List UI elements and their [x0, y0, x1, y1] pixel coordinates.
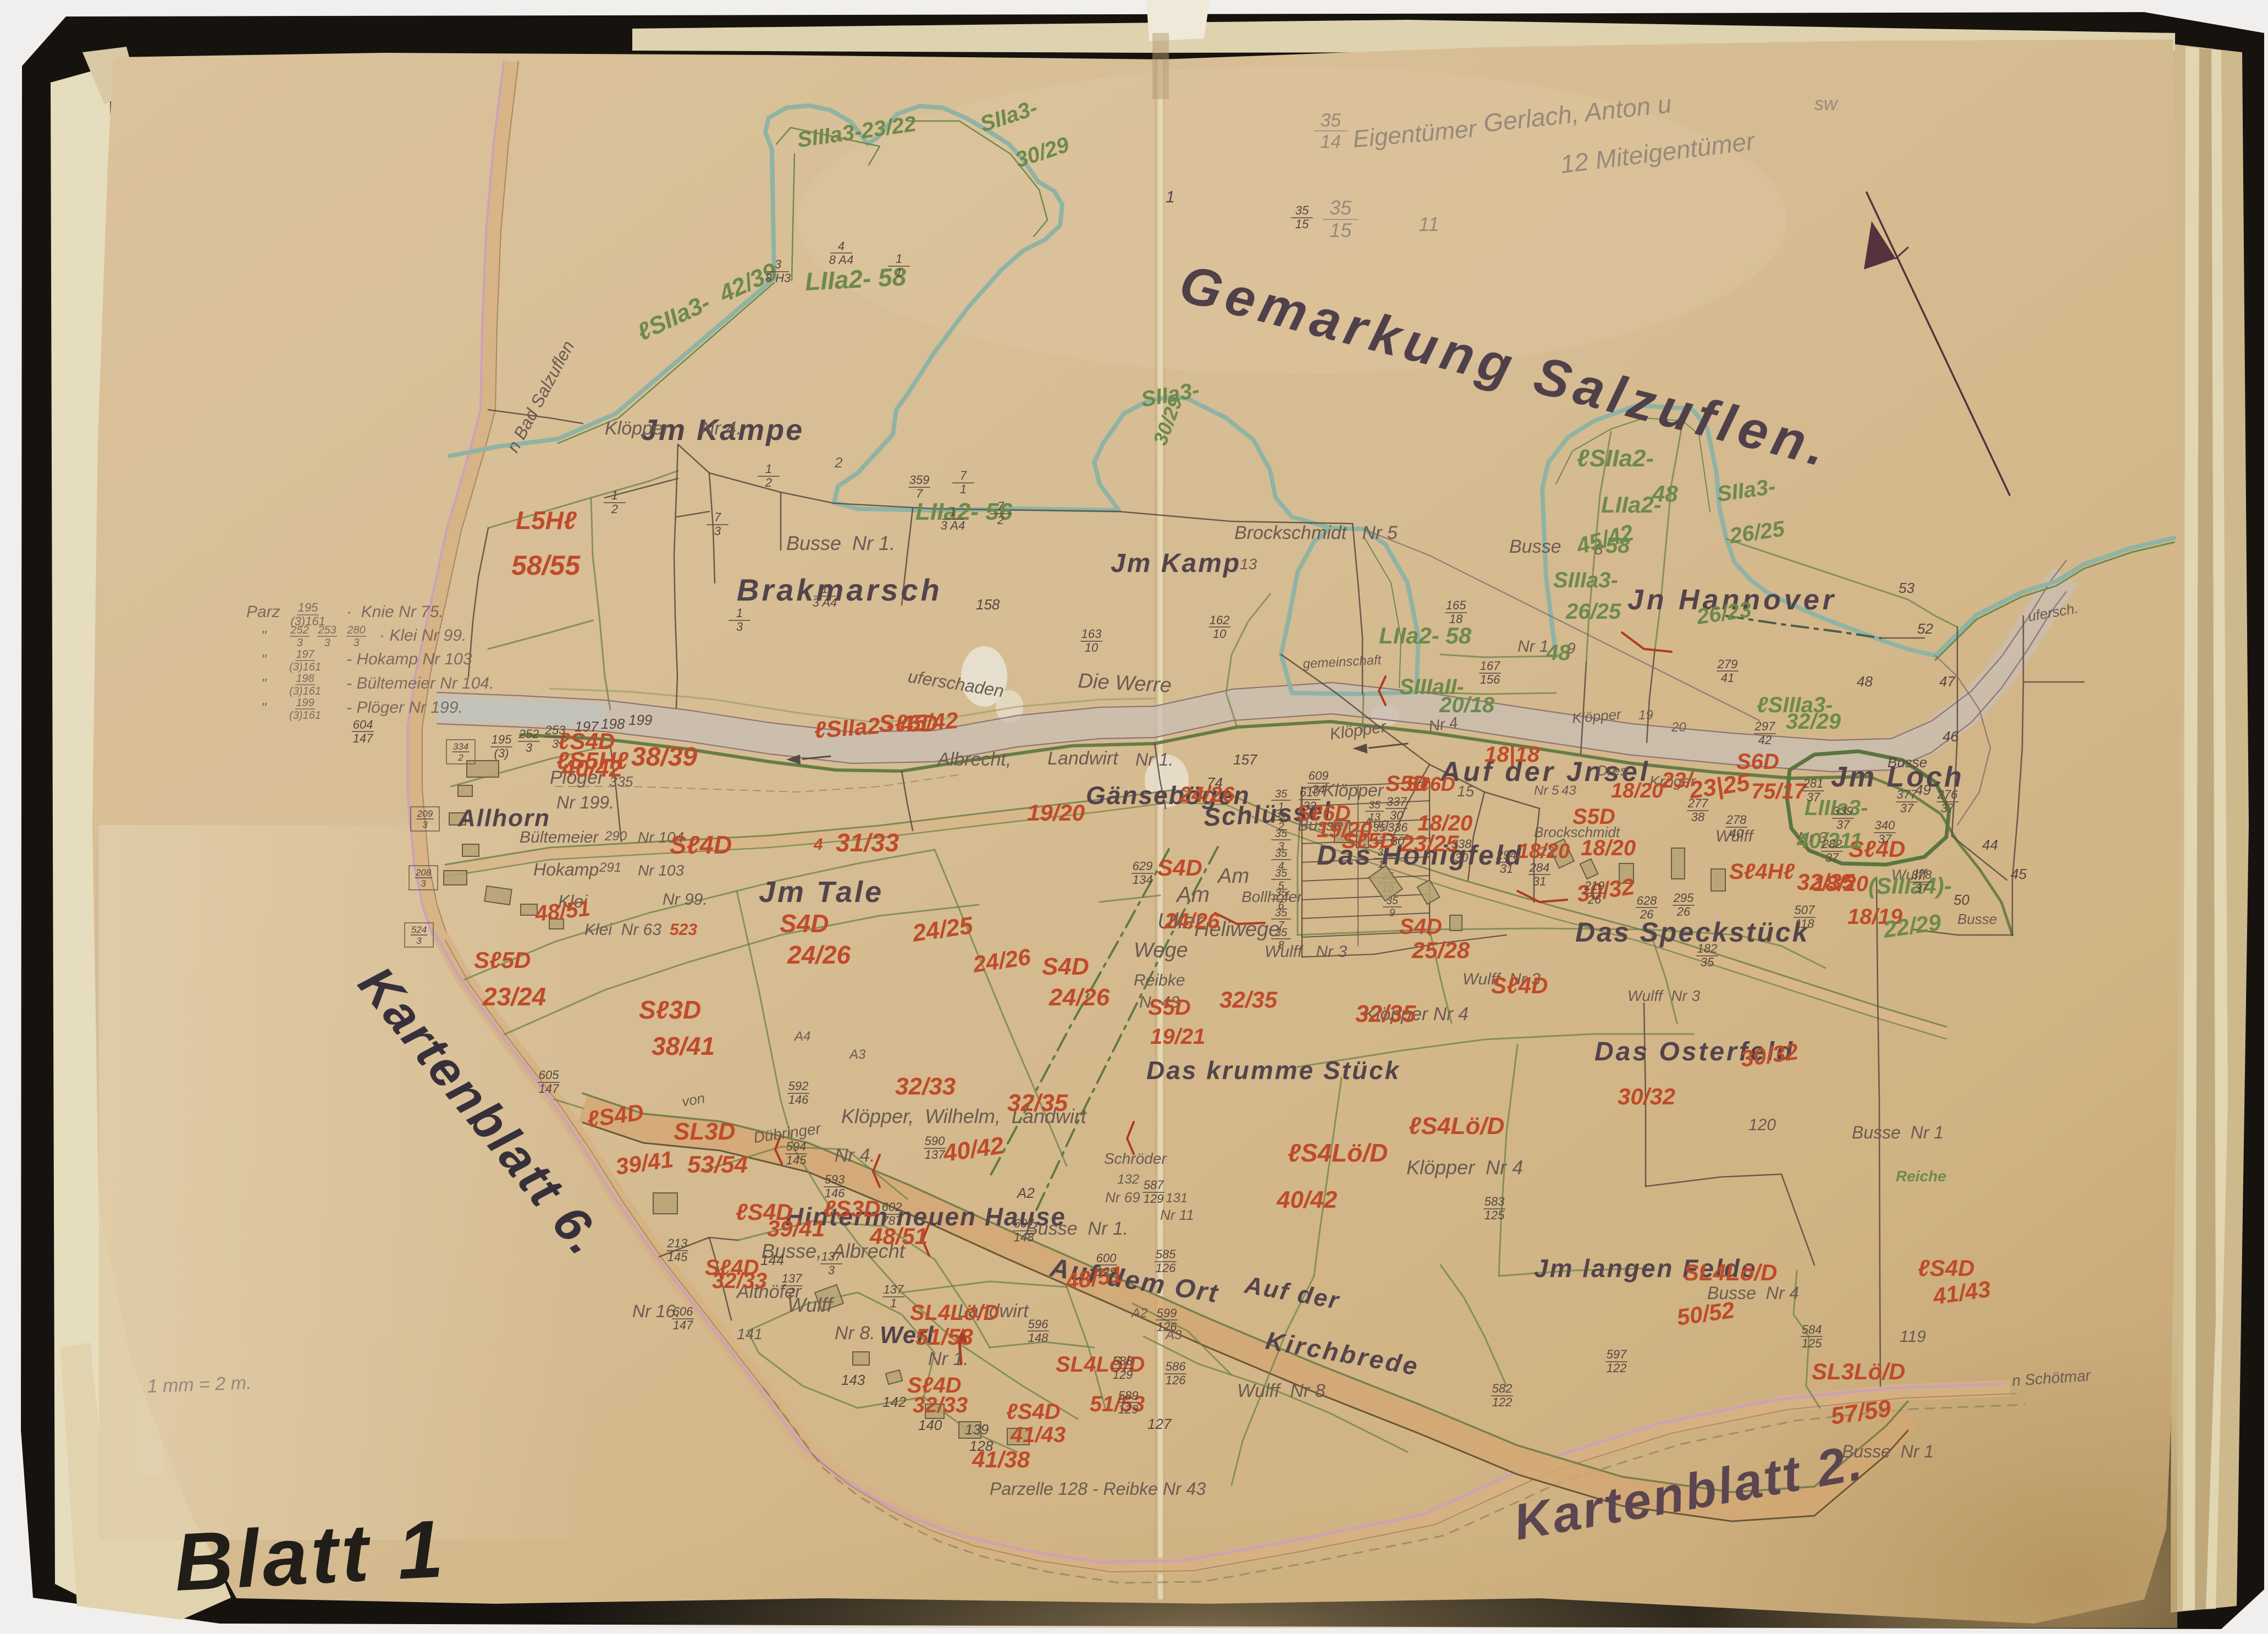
svg-text:507: 507 — [1795, 903, 1815, 917]
svg-text:(3)161: (3)161 — [289, 661, 321, 673]
svg-text:44: 44 — [1982, 837, 1998, 853]
svg-text:11: 11 — [1419, 213, 1439, 235]
svg-text:32/33: 32/33 — [712, 1269, 767, 1293]
svg-text:199: 199 — [296, 697, 314, 709]
svg-text:2: 2 — [997, 513, 1004, 527]
svg-text:Wulff Nr 3: Wulff Nr 3 — [1627, 987, 1701, 1004]
svg-text:31: 31 — [1500, 862, 1513, 876]
svg-text:23/: 23/ — [1661, 768, 1694, 793]
svg-text:31: 31 — [1533, 874, 1546, 888]
svg-text:252: 252 — [290, 624, 308, 636]
svg-text:1: 1 — [1166, 188, 1175, 206]
svg-text:146: 146 — [825, 1186, 845, 1200]
svg-text:278: 278 — [1726, 813, 1747, 827]
svg-text:4: 4 — [813, 835, 823, 854]
svg-text:129: 129 — [1096, 1265, 1117, 1279]
svg-text:Busse Nr 1.: Busse Nr 1. — [1025, 1218, 1128, 1239]
svg-text:3: 3 — [296, 637, 302, 649]
svg-text:1: 1 — [765, 462, 772, 476]
svg-text:3: 3 — [422, 819, 428, 830]
svg-text:19/21: 19/21 — [1150, 1025, 1205, 1049]
svg-text:Klei Nr 63: Klei Nr 63 — [584, 921, 661, 939]
svg-text:37: 37 — [1836, 818, 1850, 832]
svg-text:2: 2 — [611, 502, 618, 516]
svg-text:Nr 4.: Nr 4. — [835, 1145, 875, 1166]
svg-text:19/20: 19/20 — [1027, 800, 1085, 826]
svg-text:20/18: 20/18 — [1439, 693, 1495, 717]
svg-text:141: 141 — [737, 1325, 763, 1343]
svg-text:359: 359 — [909, 473, 930, 487]
svg-text:163: 163 — [1081, 627, 1102, 641]
svg-text:35: 35 — [1368, 800, 1381, 811]
svg-text:131: 131 — [1166, 1191, 1188, 1206]
svg-text:32/35: 32/35 — [1355, 1000, 1416, 1027]
svg-text:15: 15 — [1457, 783, 1475, 800]
svg-text:294: 294 — [1496, 848, 1517, 862]
svg-text:50: 50 — [1954, 892, 1969, 908]
svg-text:787: 787 — [882, 1214, 902, 1228]
svg-text:199: 199 — [628, 712, 652, 728]
svg-text:Busse Nr 1.: Busse Nr 1. — [786, 532, 895, 554]
svg-text:41/43: 41/43 — [1010, 1423, 1066, 1447]
svg-text:18/20: 18/20 — [1417, 811, 1472, 835]
svg-text:35: 35 — [1275, 907, 1288, 919]
svg-text:- Plöger Nr 199.: - Plöger Nr 199. — [346, 698, 463, 717]
svg-text:Nr 99.: Nr 99. — [663, 890, 708, 909]
svg-text:52: 52 — [1917, 620, 1933, 637]
svg-text:Schröder: Schröder — [1104, 1150, 1167, 1167]
svg-text:7: 7 — [714, 510, 721, 524]
svg-text:590: 590 — [925, 1134, 945, 1148]
svg-text:7: 7 — [997, 499, 1005, 513]
svg-text:Wulff Nr 8: Wulff Nr 8 — [1237, 1380, 1326, 1401]
svg-text:ℓSIIa2-: ℓSIIa2- — [1577, 445, 1654, 472]
svg-text:32/35: 32/35 — [1007, 1090, 1068, 1116]
svg-text:586: 586 — [1166, 1360, 1186, 1373]
svg-text:LIIa2-: LIIa2- — [1601, 492, 1662, 518]
svg-text:37: 37 — [1941, 801, 1955, 815]
svg-text:35: 35 — [1329, 196, 1352, 219]
svg-text:340: 340 — [1875, 818, 1895, 832]
svg-text:139: 139 — [965, 1421, 989, 1438]
svg-text:146: 146 — [788, 1093, 809, 1107]
svg-text:589: 589 — [1118, 1389, 1139, 1402]
svg-text:1: 1 — [890, 1296, 897, 1310]
svg-text:Sℓ4D: Sℓ4D — [1491, 972, 1548, 998]
svg-text:127: 127 — [1147, 1416, 1172, 1432]
svg-text:523: 523 — [670, 921, 697, 939]
svg-text:1: 1 — [821, 582, 828, 596]
svg-text:24/26: 24/26 — [787, 940, 851, 969]
svg-text:Klöpper Nr 4: Klöpper Nr 4 — [1406, 1156, 1523, 1179]
svg-text:15: 15 — [1295, 217, 1309, 231]
svg-text:282: 282 — [1822, 837, 1842, 851]
svg-text:18/20: 18/20 — [1517, 840, 1570, 863]
svg-text:336: 336 — [1388, 821, 1408, 834]
svg-text:Das krumme Stück: Das krumme Stück — [1146, 1056, 1400, 1085]
svg-text:144: 144 — [760, 1252, 784, 1268]
svg-text:602: 602 — [882, 1200, 902, 1214]
svg-text:297: 297 — [1754, 719, 1775, 733]
svg-text:2: 2 — [765, 476, 772, 489]
svg-text:32: 32 — [1303, 799, 1316, 813]
svg-text:158: 158 — [976, 596, 1000, 613]
svg-text:145: 145 — [667, 1250, 688, 1264]
svg-text:134: 134 — [1133, 873, 1153, 887]
svg-text:LIIa2- 58: LIIa2- 58 — [1379, 623, 1472, 648]
svg-text:Nr 69: Nr 69 — [1105, 1189, 1140, 1206]
svg-text:35: 35 — [1701, 955, 1714, 969]
svg-text:157: 157 — [1233, 751, 1258, 768]
svg-text:126: 126 — [1156, 1261, 1176, 1275]
svg-text:162: 162 — [1210, 613, 1230, 627]
svg-text:3: 3 — [828, 1263, 835, 1277]
svg-text:Wege: Wege — [1134, 939, 1188, 962]
svg-text:253: 253 — [317, 624, 336, 636]
svg-text:147: 147 — [353, 731, 373, 745]
svg-text:13: 13 — [1240, 555, 1257, 573]
svg-text:37: 37 — [1807, 790, 1820, 804]
svg-text:10: 10 — [1213, 627, 1227, 641]
svg-text:592: 592 — [788, 1079, 809, 1093]
svg-text:295: 295 — [1673, 891, 1694, 905]
svg-text:281: 281 — [1803, 777, 1824, 790]
svg-text:S4D: S4D — [780, 909, 829, 938]
svg-text:30: 30 — [1391, 834, 1405, 848]
svg-text:4: 4 — [838, 239, 845, 253]
svg-text:Reibke: Reibke — [1134, 971, 1185, 989]
svg-text:3: 3 — [775, 257, 782, 271]
svg-text:Sℓ5D: Sℓ5D — [474, 947, 531, 973]
svg-text:26: 26 — [1640, 907, 1654, 921]
svg-text:Busse Nr 1: Busse Nr 1 — [1852, 1123, 1944, 1142]
svg-text:600: 600 — [1096, 1251, 1117, 1265]
svg-text:125: 125 — [1485, 1208, 1505, 1222]
svg-text:Bültemeier: Bültemeier — [520, 828, 599, 846]
svg-text:1 mm = 2 m.: 1 mm = 2 m. — [147, 1372, 252, 1397]
svg-text:14: 14 — [1320, 131, 1341, 152]
svg-text:20: 20 — [1671, 720, 1686, 735]
svg-text:597: 597 — [1607, 1347, 1627, 1361]
svg-text:337: 337 — [1387, 795, 1407, 808]
svg-text:49: 49 — [1915, 782, 1931, 798]
svg-text:Reiche: Reiche — [1896, 1168, 1946, 1185]
svg-text:53/54: 53/54 — [687, 1151, 748, 1178]
svg-text:3: 3 — [714, 524, 721, 538]
svg-text:122: 122 — [1492, 1395, 1513, 1409]
svg-text:31/33: 31/33 — [836, 828, 900, 857]
svg-text:198: 198 — [296, 673, 314, 685]
svg-text:585: 585 — [1156, 1247, 1176, 1261]
svg-text:Albrecht,: Albrecht, — [936, 749, 1011, 770]
svg-text:Busse Nr 1: Busse Nr 1 — [1842, 1442, 1934, 1461]
svg-text:209: 209 — [417, 808, 433, 819]
svg-text:25/28: 25/28 — [1411, 937, 1470, 963]
svg-text:Sℓ4D: Sℓ4D — [670, 830, 732, 859]
svg-text:(3)161: (3)161 — [289, 709, 321, 722]
svg-text:Nr 1.: Nr 1. — [1135, 750, 1173, 769]
svg-text:ℓS4D: ℓS4D — [1006, 1400, 1060, 1424]
svg-text:Nr 199.: Nr 199. — [556, 793, 614, 812]
svg-text:35: 35 — [1275, 848, 1288, 860]
svg-text:35: 35 — [1275, 828, 1288, 840]
svg-text:3: 3 — [324, 637, 330, 649]
svg-text:43: 43 — [1561, 783, 1576, 798]
svg-text:Busse: Busse — [1888, 754, 1927, 771]
svg-text:2: 2 — [788, 1285, 795, 1299]
svg-text:· Klei Nr 99.: · Klei Nr 99. — [379, 626, 466, 645]
svg-text:1: 1 — [611, 488, 618, 502]
svg-text:SIIIa3-: SIIIa3- — [1553, 568, 1618, 592]
svg-text:3: 3 — [421, 878, 426, 889]
svg-text:SL4Lö/D: SL4Lö/D — [1684, 1259, 1777, 1285]
svg-text:· Knie Nr 75.: · Knie Nr 75. — [346, 603, 444, 621]
svg-text:1: 1 — [960, 482, 967, 496]
svg-text:Brakmarsch: Brakmarsch — [737, 573, 942, 607]
svg-text:599: 599 — [1157, 1306, 1177, 1320]
svg-text:588: 588 — [1113, 1354, 1133, 1368]
svg-text:582: 582 — [1492, 1382, 1513, 1395]
svg-text:126: 126 — [1166, 1373, 1186, 1387]
svg-text:Nr 8.: Nr 8. — [835, 1323, 875, 1344]
svg-text:128: 128 — [969, 1438, 994, 1454]
svg-text:S4D: S4D — [1042, 953, 1089, 980]
svg-text:Nr 11: Nr 11 — [1160, 1207, 1194, 1223]
svg-text:A2: A2 — [1016, 1185, 1035, 1201]
svg-text:280: 280 — [346, 624, 365, 636]
svg-text:S4D: S4D — [1157, 855, 1202, 881]
svg-text:629: 629 — [1133, 859, 1153, 873]
svg-text:ℓS4Lö/D: ℓS4Lö/D — [1409, 1113, 1504, 1140]
svg-text:40/42: 40/42 — [1276, 1186, 1338, 1213]
svg-text:37: 37 — [1878, 832, 1892, 846]
svg-text:3: 3 — [736, 620, 743, 634]
svg-text:sw: sw — [1814, 93, 1839, 114]
svg-text:32/29: 32/29 — [1786, 709, 1841, 734]
svg-text:284: 284 — [1529, 861, 1550, 874]
svg-text:137: 137 — [884, 1283, 904, 1296]
svg-text:19: 19 — [1638, 708, 1653, 723]
svg-text:8 A4: 8 A4 — [829, 253, 853, 267]
svg-text:ℓS4Lö/D: ℓS4Lö/D — [1288, 1138, 1388, 1167]
svg-text:129: 129 — [1144, 1192, 1164, 1206]
svg-text:1: 1 — [896, 252, 902, 266]
svg-text:7: 7 — [916, 487, 923, 500]
svg-text:A3: A3 — [848, 1047, 866, 1062]
svg-text:3: 3 — [552, 737, 559, 751]
svg-text:147: 147 — [673, 1318, 693, 1332]
svg-text:197: 197 — [296, 648, 314, 661]
svg-text:SL4Lö/D: SL4Lö/D — [910, 1301, 999, 1325]
svg-text:38/41: 38/41 — [652, 1032, 715, 1060]
svg-text:Brockschmidt Nr 5: Brockschmidt Nr 5 — [1234, 522, 1398, 543]
svg-text:195: 195 — [298, 601, 318, 614]
svg-text:Allhorn: Allhorn — [457, 805, 550, 832]
svg-text:607: 607 — [1014, 1217, 1034, 1230]
svg-text:610: 610 — [1300, 785, 1320, 799]
svg-text:48: 48 — [1857, 673, 1873, 690]
svg-text:148: 148 — [1014, 1230, 1034, 1244]
svg-text:18|18: 18|18 — [1485, 742, 1540, 767]
svg-text:125: 125 — [1802, 1336, 1822, 1350]
svg-text:Nr 4.: Nr 4. — [701, 418, 742, 439]
svg-text:126: 126 — [1157, 1320, 1177, 1334]
svg-text:1: 1 — [736, 606, 743, 620]
svg-text:Landwirt: Landwirt — [1047, 748, 1119, 769]
svg-text:- Bültemeier Nr 104.: - Bültemeier Nr 104. — [346, 674, 494, 692]
svg-text:129: 129 — [1118, 1402, 1139, 1416]
svg-text:122: 122 — [1607, 1361, 1627, 1375]
svg-text:8 H3: 8 H3 — [765, 271, 791, 285]
svg-text:S5D: S5D — [1148, 995, 1191, 1020]
svg-text:Am: Am — [1217, 865, 1249, 888]
svg-text:Bollhöfer: Bollhöfer — [1241, 888, 1303, 905]
svg-text:182: 182 — [1697, 942, 1718, 955]
svg-text:Busse: Busse — [1509, 536, 1561, 557]
svg-text:S4D: S4D — [1399, 915, 1442, 939]
svg-text:47: 47 — [1939, 673, 1956, 690]
svg-text:339: 339 — [1833, 804, 1853, 818]
svg-text:- Hokamp Nr 103: - Hokamp Nr 103 — [346, 650, 472, 668]
svg-text:Blatt 1: Blatt 1 — [172, 1503, 448, 1608]
svg-text:37: 37 — [1825, 851, 1839, 865]
svg-text:41: 41 — [1721, 671, 1734, 685]
svg-text:18/20: 18/20 — [1581, 836, 1636, 860]
svg-text:1: 1 — [950, 505, 956, 519]
svg-text:32/35: 32/35 — [1219, 987, 1278, 1013]
svg-text:Klöpper: Klöpper — [1323, 780, 1384, 800]
svg-text:Parz: Parz — [246, 603, 280, 621]
svg-text:219: 219 — [1584, 879, 1605, 893]
svg-text:30: 30 — [1455, 851, 1469, 865]
svg-text:S5D: S5D — [1572, 805, 1615, 829]
svg-text:SL3Lö/D: SL3Lö/D — [1812, 1358, 1905, 1384]
svg-text:46: 46 — [1943, 728, 1958, 745]
svg-text:32/35: 32/35 — [1797, 869, 1855, 895]
svg-text:38/39: 38/39 — [631, 742, 697, 772]
svg-text:147: 147 — [539, 1082, 559, 1096]
svg-text:604: 604 — [353, 718, 373, 731]
svg-text:42: 42 — [1758, 733, 1772, 747]
svg-text:143: 143 — [841, 1372, 865, 1388]
svg-text:156: 156 — [1480, 673, 1500, 686]
svg-text:142: 142 — [882, 1394, 907, 1410]
svg-text:39/41: 39/41 — [767, 1215, 825, 1241]
svg-text:53: 53 — [1899, 580, 1914, 596]
svg-text:10: 10 — [1085, 641, 1099, 654]
svg-text:37: 37 — [1900, 801, 1914, 815]
svg-text:583: 583 — [1485, 1195, 1505, 1208]
svg-text:SL3D: SL3D — [674, 1118, 735, 1145]
svg-text:198: 198 — [601, 716, 625, 732]
svg-text:9: 9 — [1389, 907, 1395, 919]
svg-text:378: 378 — [1912, 868, 1932, 882]
svg-text:129: 129 — [1113, 1368, 1133, 1382]
svg-text:23/24: 23/24 — [482, 982, 546, 1011]
svg-text:35: 35 — [1275, 867, 1288, 879]
svg-text:26: 26 — [1676, 905, 1691, 918]
svg-text:A4: A4 — [793, 1029, 810, 1044]
svg-text:24/26: 24/26 — [1049, 984, 1110, 1011]
svg-text:74: 74 — [1207, 774, 1223, 791]
svg-text:Jm Kamp: Jm Kamp — [1111, 549, 1241, 578]
svg-text:524: 524 — [411, 925, 427, 935]
svg-text:132: 132 — [1117, 1172, 1139, 1187]
svg-text:35: 35 — [1320, 110, 1341, 131]
svg-text:Nr 1.: Nr 1. — [928, 1349, 969, 1369]
svg-text:213: 213 — [667, 1236, 688, 1250]
svg-text:145: 145 — [786, 1153, 807, 1167]
svg-text:195: 195 — [492, 733, 512, 746]
svg-text:Am: Am — [1176, 883, 1210, 907]
svg-text:2: 2 — [834, 454, 843, 471]
svg-text:Das Speckstück: Das Speckstück — [1575, 917, 1809, 948]
svg-text:38: 38 — [1691, 810, 1705, 824]
svg-text:LIIa2- 58: LIIa2- 58 — [804, 262, 907, 296]
svg-text:75/17: 75/17 — [1751, 779, 1807, 804]
svg-text:3: 3 — [526, 741, 533, 755]
svg-text:606: 606 — [673, 1305, 693, 1318]
svg-text:253: 253 — [545, 723, 566, 737]
svg-text:7: 7 — [960, 469, 967, 482]
svg-text:609: 609 — [1309, 769, 1329, 783]
svg-text:ℓS4D: ℓS4D — [1918, 1255, 1974, 1281]
svg-text:593: 593 — [825, 1173, 845, 1186]
svg-text:48: 48 — [1546, 641, 1571, 665]
svg-text:2: 2 — [457, 752, 463, 763]
svg-text:3 A4: 3 A4 — [813, 596, 837, 609]
svg-text:30/32: 30/32 — [1618, 1083, 1675, 1109]
svg-text:Jm Tale: Jm Tale — [759, 876, 884, 909]
svg-text:A2: A2 — [1130, 1306, 1147, 1321]
svg-text:119: 119 — [1900, 1328, 1926, 1346]
svg-text:587: 587 — [1144, 1178, 1164, 1192]
svg-text:594: 594 — [786, 1140, 807, 1153]
svg-text:40: 40 — [1730, 827, 1743, 840]
svg-text:32/33: 32/33 — [895, 1073, 956, 1100]
svg-text:291: 291 — [599, 860, 621, 875]
svg-text:197: 197 — [575, 718, 599, 735]
svg-text:45: 45 — [2011, 866, 2027, 882]
svg-text:S6D: S6D — [1736, 750, 1779, 774]
svg-text:279: 279 — [1717, 657, 1738, 671]
svg-text:290: 290 — [604, 829, 627, 844]
svg-text:Nr 5: Nr 5 — [1534, 783, 1559, 798]
svg-text:26/25: 26/25 — [1565, 599, 1621, 624]
svg-text:120: 120 — [1748, 1116, 1776, 1134]
svg-text:277: 277 — [1687, 796, 1708, 810]
svg-text:S5D: S5D — [1386, 772, 1428, 796]
svg-text:148: 148 — [1028, 1331, 1049, 1345]
svg-text:3 A4: 3 A4 — [941, 519, 965, 532]
svg-text:252: 252 — [518, 727, 539, 741]
svg-text:605: 605 — [539, 1068, 559, 1082]
svg-text:(3): (3) — [494, 746, 509, 760]
svg-text:35: 35 — [1295, 203, 1309, 217]
svg-text:(3)161: (3)161 — [289, 685, 321, 697]
svg-text:118: 118 — [1795, 917, 1814, 931]
svg-text:Dres: Dres — [1597, 762, 1627, 779]
svg-text:40/42: 40/42 — [561, 755, 623, 782]
svg-text:L5Hℓ: L5Hℓ — [516, 506, 577, 535]
svg-text:Parzelle 128 - Reibke Nr 43: Parzelle 128 - Reibke Nr 43 — [990, 1479, 1206, 1499]
svg-text:167: 167 — [1480, 659, 1500, 673]
svg-text:1: 1 — [896, 266, 902, 279]
svg-text:24/26: 24/26 — [1164, 909, 1220, 933]
svg-text:32/33: 32/33 — [913, 1393, 968, 1417]
svg-text:584: 584 — [1802, 1323, 1822, 1336]
svg-text:3: 3 — [416, 936, 422, 946]
